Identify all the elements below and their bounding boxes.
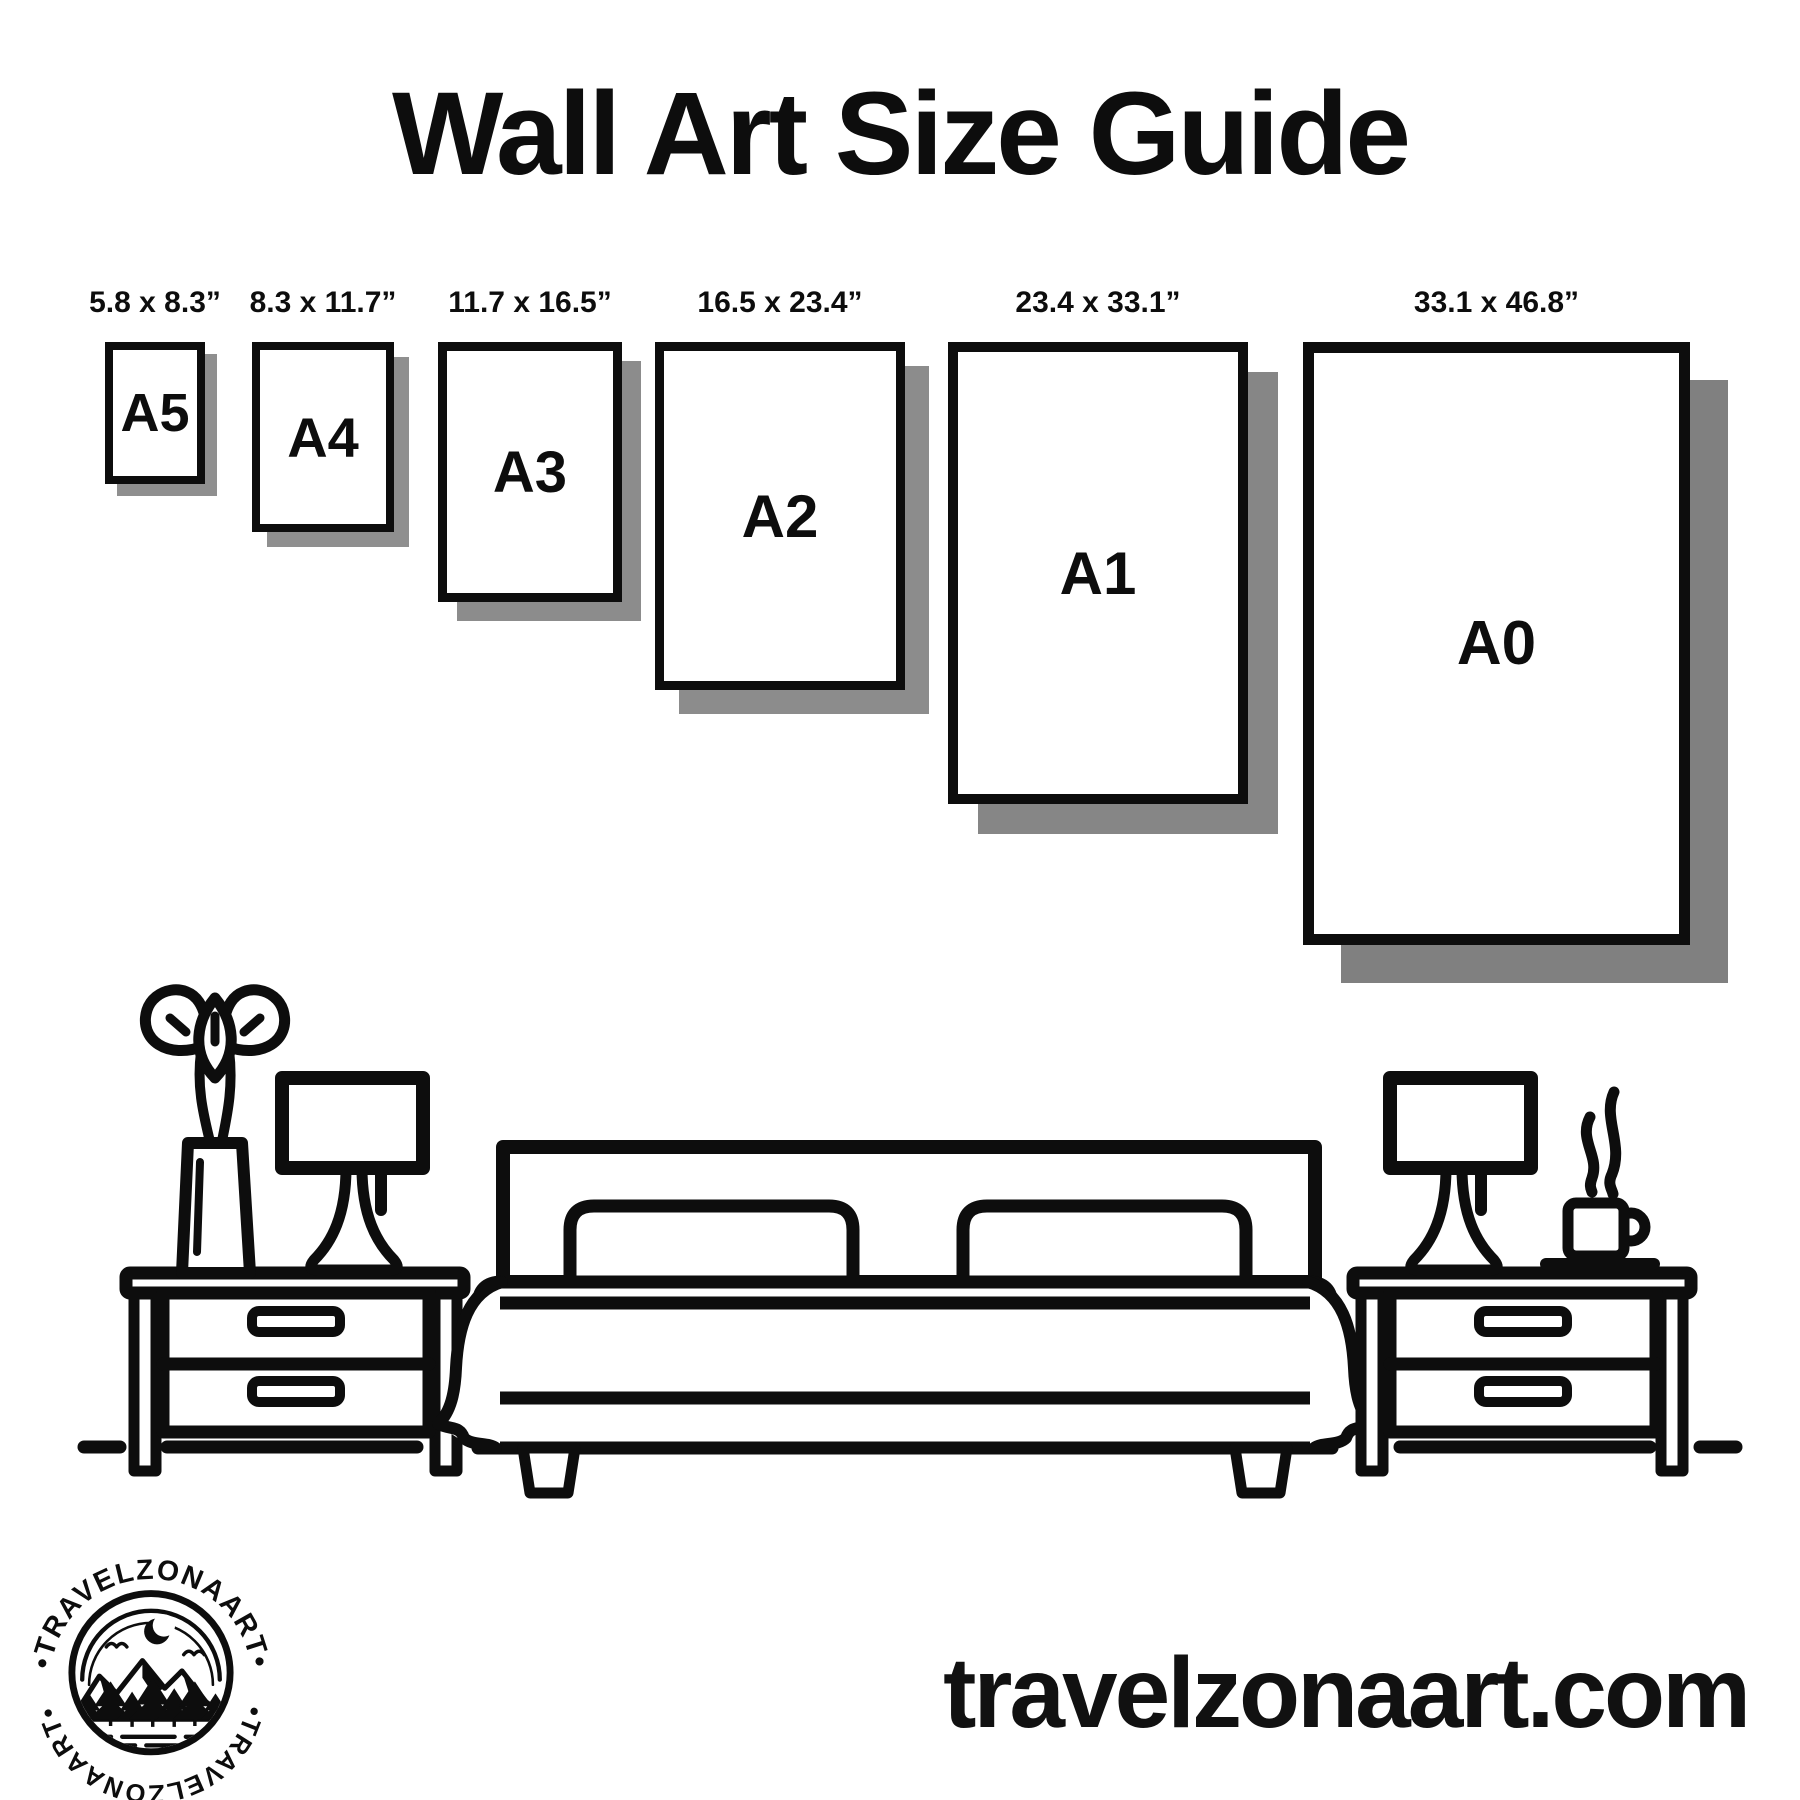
frame-a1: 23.4 x 33.1” A1 xyxy=(948,288,1248,804)
wall-art-size-guide-page: Wall Art Size Guide 5.8 x 8.3” A5 8.3 x … xyxy=(0,0,1800,1800)
bed-icon xyxy=(436,1147,1374,1493)
logo-badge: •TRAVELZONAART• •TRAVELZONAART• xyxy=(22,1542,280,1800)
left-table-lamp-icon xyxy=(282,1078,423,1270)
bed-leg-left xyxy=(523,1448,575,1493)
frame-box-a0: A0 xyxy=(1303,342,1690,945)
frame-label-a3: A3 xyxy=(493,439,567,506)
size-label-a3: 11.7 x 16.5” xyxy=(448,288,611,318)
right-table-lamp-icon xyxy=(1390,1078,1531,1270)
frame-a2: 16.5 x 23.4” A2 xyxy=(655,288,905,690)
frame-a4: 8.3 x 11.7” A4 xyxy=(252,288,394,532)
frame-box-a5: A5 xyxy=(105,342,205,484)
bed-leg-right xyxy=(1235,1448,1287,1493)
frame-a3: 11.7 x 16.5” A3 xyxy=(438,288,622,602)
pillow-left xyxy=(570,1206,853,1282)
frame-box-a1: A1 xyxy=(948,342,1248,804)
bedroom-scene xyxy=(0,980,1800,1600)
website-url: travelzonaart.com xyxy=(943,1636,1748,1751)
page-title: Wall Art Size Guide xyxy=(0,66,1800,202)
size-label-a5: 5.8 x 8.3” xyxy=(89,288,221,318)
frame-label-a0: A0 xyxy=(1457,608,1536,679)
frame-box-a3: A3 xyxy=(438,342,622,602)
plant-vase-icon xyxy=(145,990,284,1273)
frame-label-a5: A5 xyxy=(120,382,189,444)
frame-label-a1: A1 xyxy=(1060,539,1137,608)
size-label-a4: 8.3 x 11.7” xyxy=(250,288,397,318)
frame-label-a2: A2 xyxy=(742,482,819,551)
size-label-a0: 33.1 x 46.8” xyxy=(1414,288,1579,318)
pillow-right xyxy=(963,1206,1246,1282)
frame-a5: 5.8 x 8.3” A5 xyxy=(105,288,205,484)
frame-box-a2: A2 xyxy=(655,342,905,690)
coffee-mug-icon xyxy=(1546,1092,1654,1264)
frame-label-a4: A4 xyxy=(287,405,359,470)
steam-icon xyxy=(1610,1092,1616,1194)
size-label-a1: 23.4 x 33.1” xyxy=(1015,288,1180,318)
size-label-a2: 16.5 x 23.4” xyxy=(697,288,862,318)
frame-box-a4: A4 xyxy=(252,342,394,532)
frame-a0: 33.1 x 46.8” A0 xyxy=(1303,288,1690,945)
steam-icon xyxy=(1586,1117,1593,1192)
